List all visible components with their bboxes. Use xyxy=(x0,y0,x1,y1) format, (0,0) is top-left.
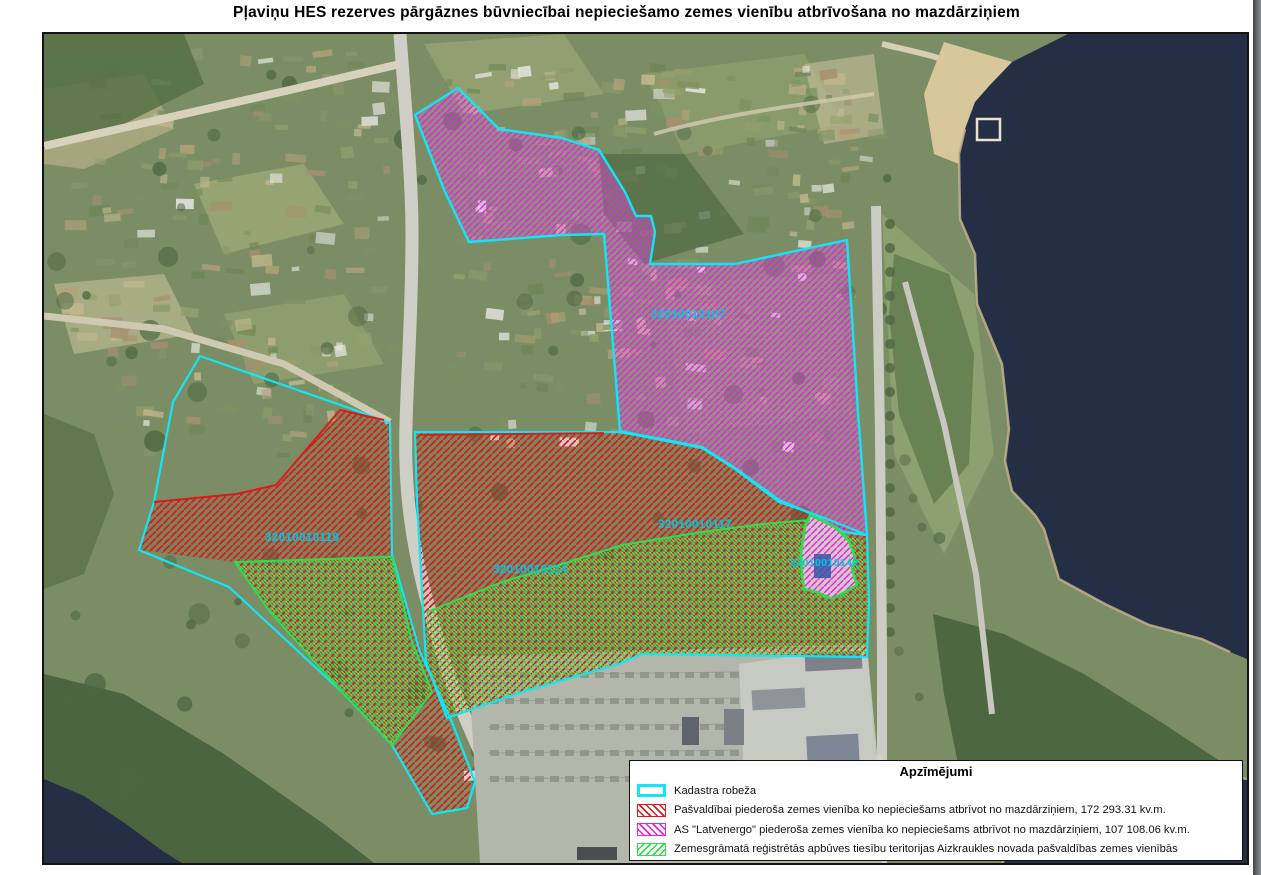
parcel-label: 32010010107 xyxy=(651,309,726,321)
substation-building xyxy=(682,717,699,745)
parcel-label: 32010010142 xyxy=(790,557,859,569)
legend-swatch-buildrights-hatch xyxy=(637,843,666,856)
substation-building xyxy=(752,688,806,711)
legend-swatch-latvenergo-hatch xyxy=(637,823,666,836)
aerial-map xyxy=(44,34,1247,863)
legend-item: Pašvaldībai piederoša zemes vienība ko n… xyxy=(630,801,1242,821)
parcel-label: 32010010117 xyxy=(658,519,732,531)
legend-item: AS "Latvenergo" piederoša zemes vienība … xyxy=(630,820,1242,840)
map-document: Pļaviņu HES rezerves pārgāznes būvniecīb… xyxy=(0,0,1261,875)
legend-item: Kadastra robeža xyxy=(630,781,1242,801)
substation-building xyxy=(724,709,744,745)
substation-building xyxy=(577,847,617,860)
parcel-label: 32010010119 xyxy=(265,532,339,544)
map-canvas: 32010010107 32010010119 32010010114 3201… xyxy=(42,32,1249,865)
legend-swatch-municipal-hatch xyxy=(637,804,666,817)
legend-item: Zemesgrāmatā reģistrētās apbūves tiesību… xyxy=(630,840,1242,860)
legend: Apzīmējumi Kadastra robeža Pašvaldībai p… xyxy=(629,760,1243,861)
window-edge xyxy=(1253,0,1261,875)
parcel-label: 32010010114 xyxy=(493,564,567,576)
legend-title: Apzīmējumi xyxy=(630,763,1242,781)
page-title: Pļaviņu HES rezerves pārgāznes būvniecīb… xyxy=(0,4,1253,22)
legend-swatch-cadastre-border xyxy=(637,784,666,797)
